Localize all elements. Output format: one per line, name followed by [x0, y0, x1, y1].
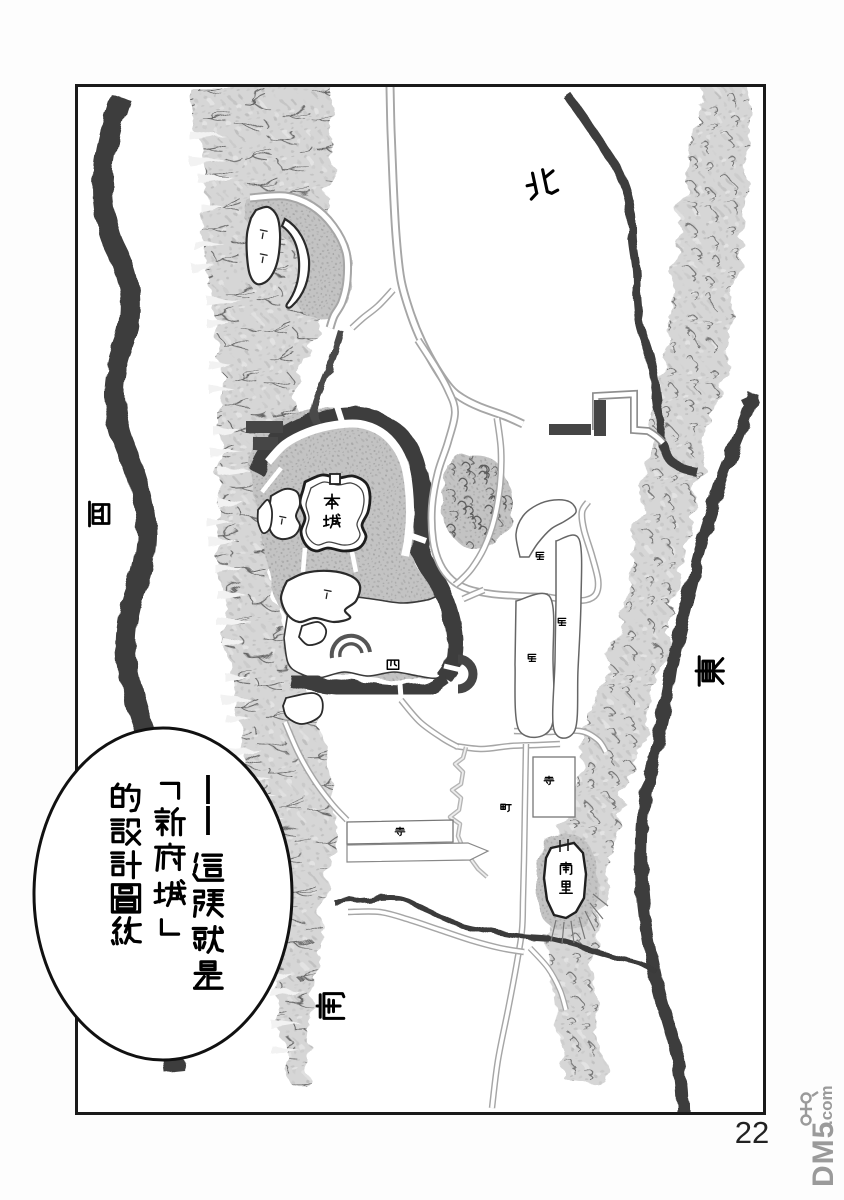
svg-text:DM5: DM5	[807, 1121, 840, 1187]
svg-text:.com: .com	[817, 1085, 836, 1125]
svg-text:22: 22	[735, 1115, 769, 1150]
